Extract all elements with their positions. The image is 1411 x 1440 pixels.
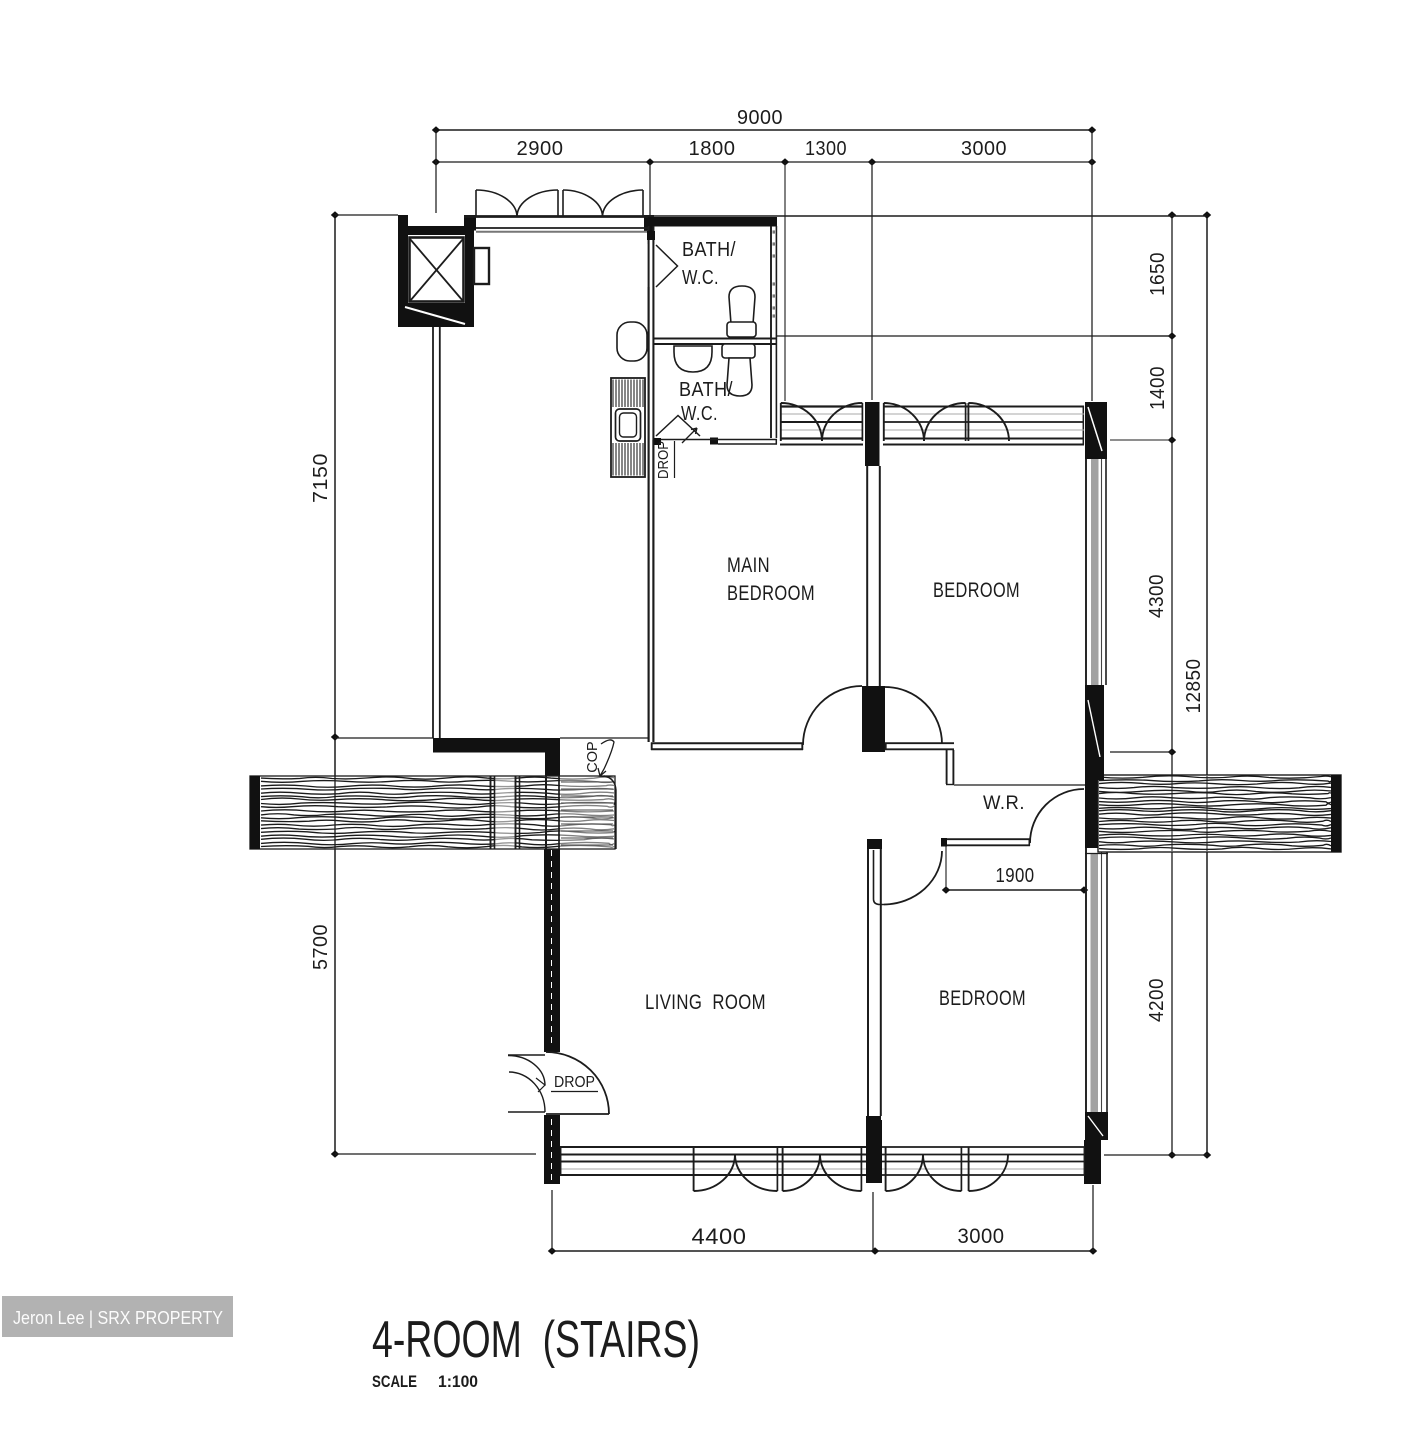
svg-text:3000: 3000 (958, 1225, 1005, 1248)
svg-text:Jeron Lee | SRX PROPERTY: Jeron Lee | SRX PROPERTY (13, 1307, 223, 1328)
svg-text:W.C.: W.C. (681, 403, 718, 425)
svg-text:1900: 1900 (996, 865, 1035, 887)
svg-text:1650: 1650 (1147, 252, 1169, 296)
svg-text:W.R.: W.R. (983, 793, 1025, 814)
svg-text:4300: 4300 (1146, 574, 1168, 618)
svg-text:LIVING ROOM: LIVING ROOM (645, 991, 766, 1014)
svg-text:2900: 2900 (517, 138, 564, 160)
svg-text:1:100: 1:100 (438, 1372, 478, 1391)
svg-text:BATH/: BATH/ (679, 379, 733, 401)
svg-text:1800: 1800 (689, 138, 736, 160)
svg-text:1400: 1400 (1147, 366, 1169, 410)
svg-text:W.C.: W.C. (682, 267, 719, 289)
svg-text:9000: 9000 (737, 107, 783, 129)
svg-text:3000: 3000 (961, 138, 1007, 160)
svg-text:4200: 4200 (1146, 978, 1168, 1022)
svg-text:4400: 4400 (692, 1224, 747, 1249)
svg-text:BEDROOM: BEDROOM (727, 582, 815, 605)
svg-text:5700: 5700 (310, 924, 332, 970)
svg-text:BATH/: BATH/ (682, 239, 736, 261)
svg-text:DROP: DROP (656, 441, 672, 479)
svg-text:1300: 1300 (805, 138, 847, 160)
svg-text:7150: 7150 (310, 453, 332, 503)
svg-text:SCALE: SCALE (372, 1372, 417, 1391)
svg-text:BEDROOM: BEDROOM (933, 579, 1020, 602)
svg-text:4-ROOM (STAIRS): 4-ROOM (STAIRS) (372, 1311, 700, 1369)
svg-text:DROP: DROP (554, 1074, 595, 1091)
svg-text:12850: 12850 (1183, 659, 1205, 714)
svg-text:MAIN: MAIN (727, 554, 770, 577)
svg-text:BEDROOM: BEDROOM (939, 987, 1026, 1010)
